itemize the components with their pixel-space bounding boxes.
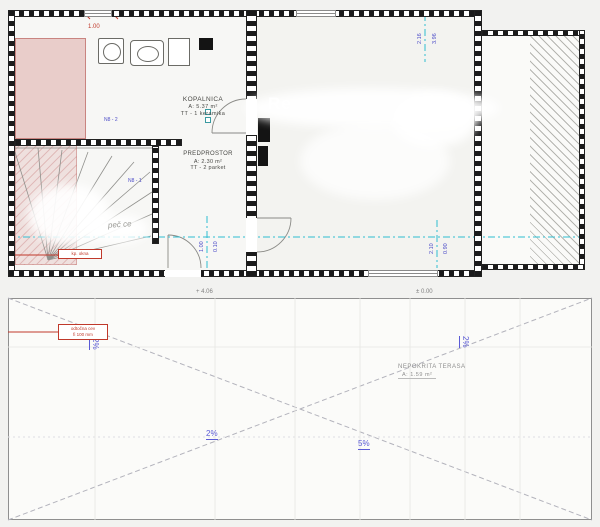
wall-unit-1 [258, 118, 270, 142]
door-opening-main [246, 218, 257, 252]
roof-area-value: A: 1.59 m² [398, 372, 436, 380]
dim-v: 2.16 [417, 33, 424, 44]
level-mark: + 4.06 [196, 289, 213, 297]
room-label-kopalnica: KOPALNICA A: 5.37 m² TT - 1 keramika [160, 96, 246, 118]
roof-note-box: odtočna cev fi 100 mm [58, 324, 108, 340]
window-top-main [296, 10, 336, 17]
wall-mark: N8 - 1 [128, 178, 142, 184]
wall-bathroom [15, 139, 182, 146]
terrace-wall-top [482, 30, 585, 36]
dim-v: 0.10 [213, 241, 220, 252]
level-mark: ± 0.00 [416, 289, 433, 297]
terrace-wall-right [579, 30, 585, 270]
wall-top [8, 10, 482, 17]
room-finish: TT - 1 keramika [160, 111, 246, 118]
floorplan-drawing: Re KOPALNICA A: 5.37 m² TT - 1 keramika … [0, 0, 600, 527]
roof-area-label: NEPOKRITA TERASA A: 1.59 m² [398, 364, 490, 379]
door-opening-bottom [165, 270, 201, 277]
roof-note-line2: fi 100 mm [61, 332, 105, 338]
window-top-left [84, 10, 112, 17]
room-name: KOPALNICA [160, 96, 246, 104]
dim-v: 3.96 [432, 33, 439, 44]
watermark-text: Re [268, 94, 292, 114]
slope-label: 2% [89, 338, 100, 350]
wall-stair [152, 146, 159, 244]
room-area: A: 2.30 m² [170, 159, 246, 166]
red-note-box: kp. okna [58, 249, 102, 259]
room-area: A: 5.37 m² [160, 104, 246, 111]
room-finish: TT - 2 parket [170, 165, 246, 172]
watermark-blob [300, 122, 450, 200]
window-bottom-main [368, 270, 438, 277]
slope-label: 5% [358, 439, 370, 450]
terrace-floor [482, 36, 579, 264]
sink [130, 40, 164, 66]
washer [98, 38, 124, 64]
room-name: PREDPROSTOR [170, 151, 246, 159]
terrace-hatch [530, 36, 579, 264]
roof-area-name: NEPOKRITA TERASA [398, 364, 490, 372]
wall-right [474, 10, 482, 277]
wall-mark: N8 - 2 [104, 117, 118, 123]
dim-v: 1.00 [199, 241, 206, 252]
cabinet [168, 38, 190, 66]
room-label-predprostor: PREDPROSTOR A: 2.30 m² TT - 2 parket [170, 151, 246, 172]
wall-unit-2 [258, 146, 268, 166]
dim-v: 0.90 [443, 243, 450, 254]
slope-label: 2% [459, 336, 470, 348]
dim-v: 2.10 [429, 243, 436, 254]
wall-left [8, 10, 15, 277]
slope-label: 2% [206, 429, 218, 440]
radiator-icon [205, 117, 211, 123]
boiler [199, 38, 213, 50]
script-note: peč ce [108, 219, 132, 231]
dim-window: 1.00 [88, 24, 100, 32]
highlight-area-top [15, 38, 86, 139]
terrace-wall-bottom [482, 264, 585, 270]
